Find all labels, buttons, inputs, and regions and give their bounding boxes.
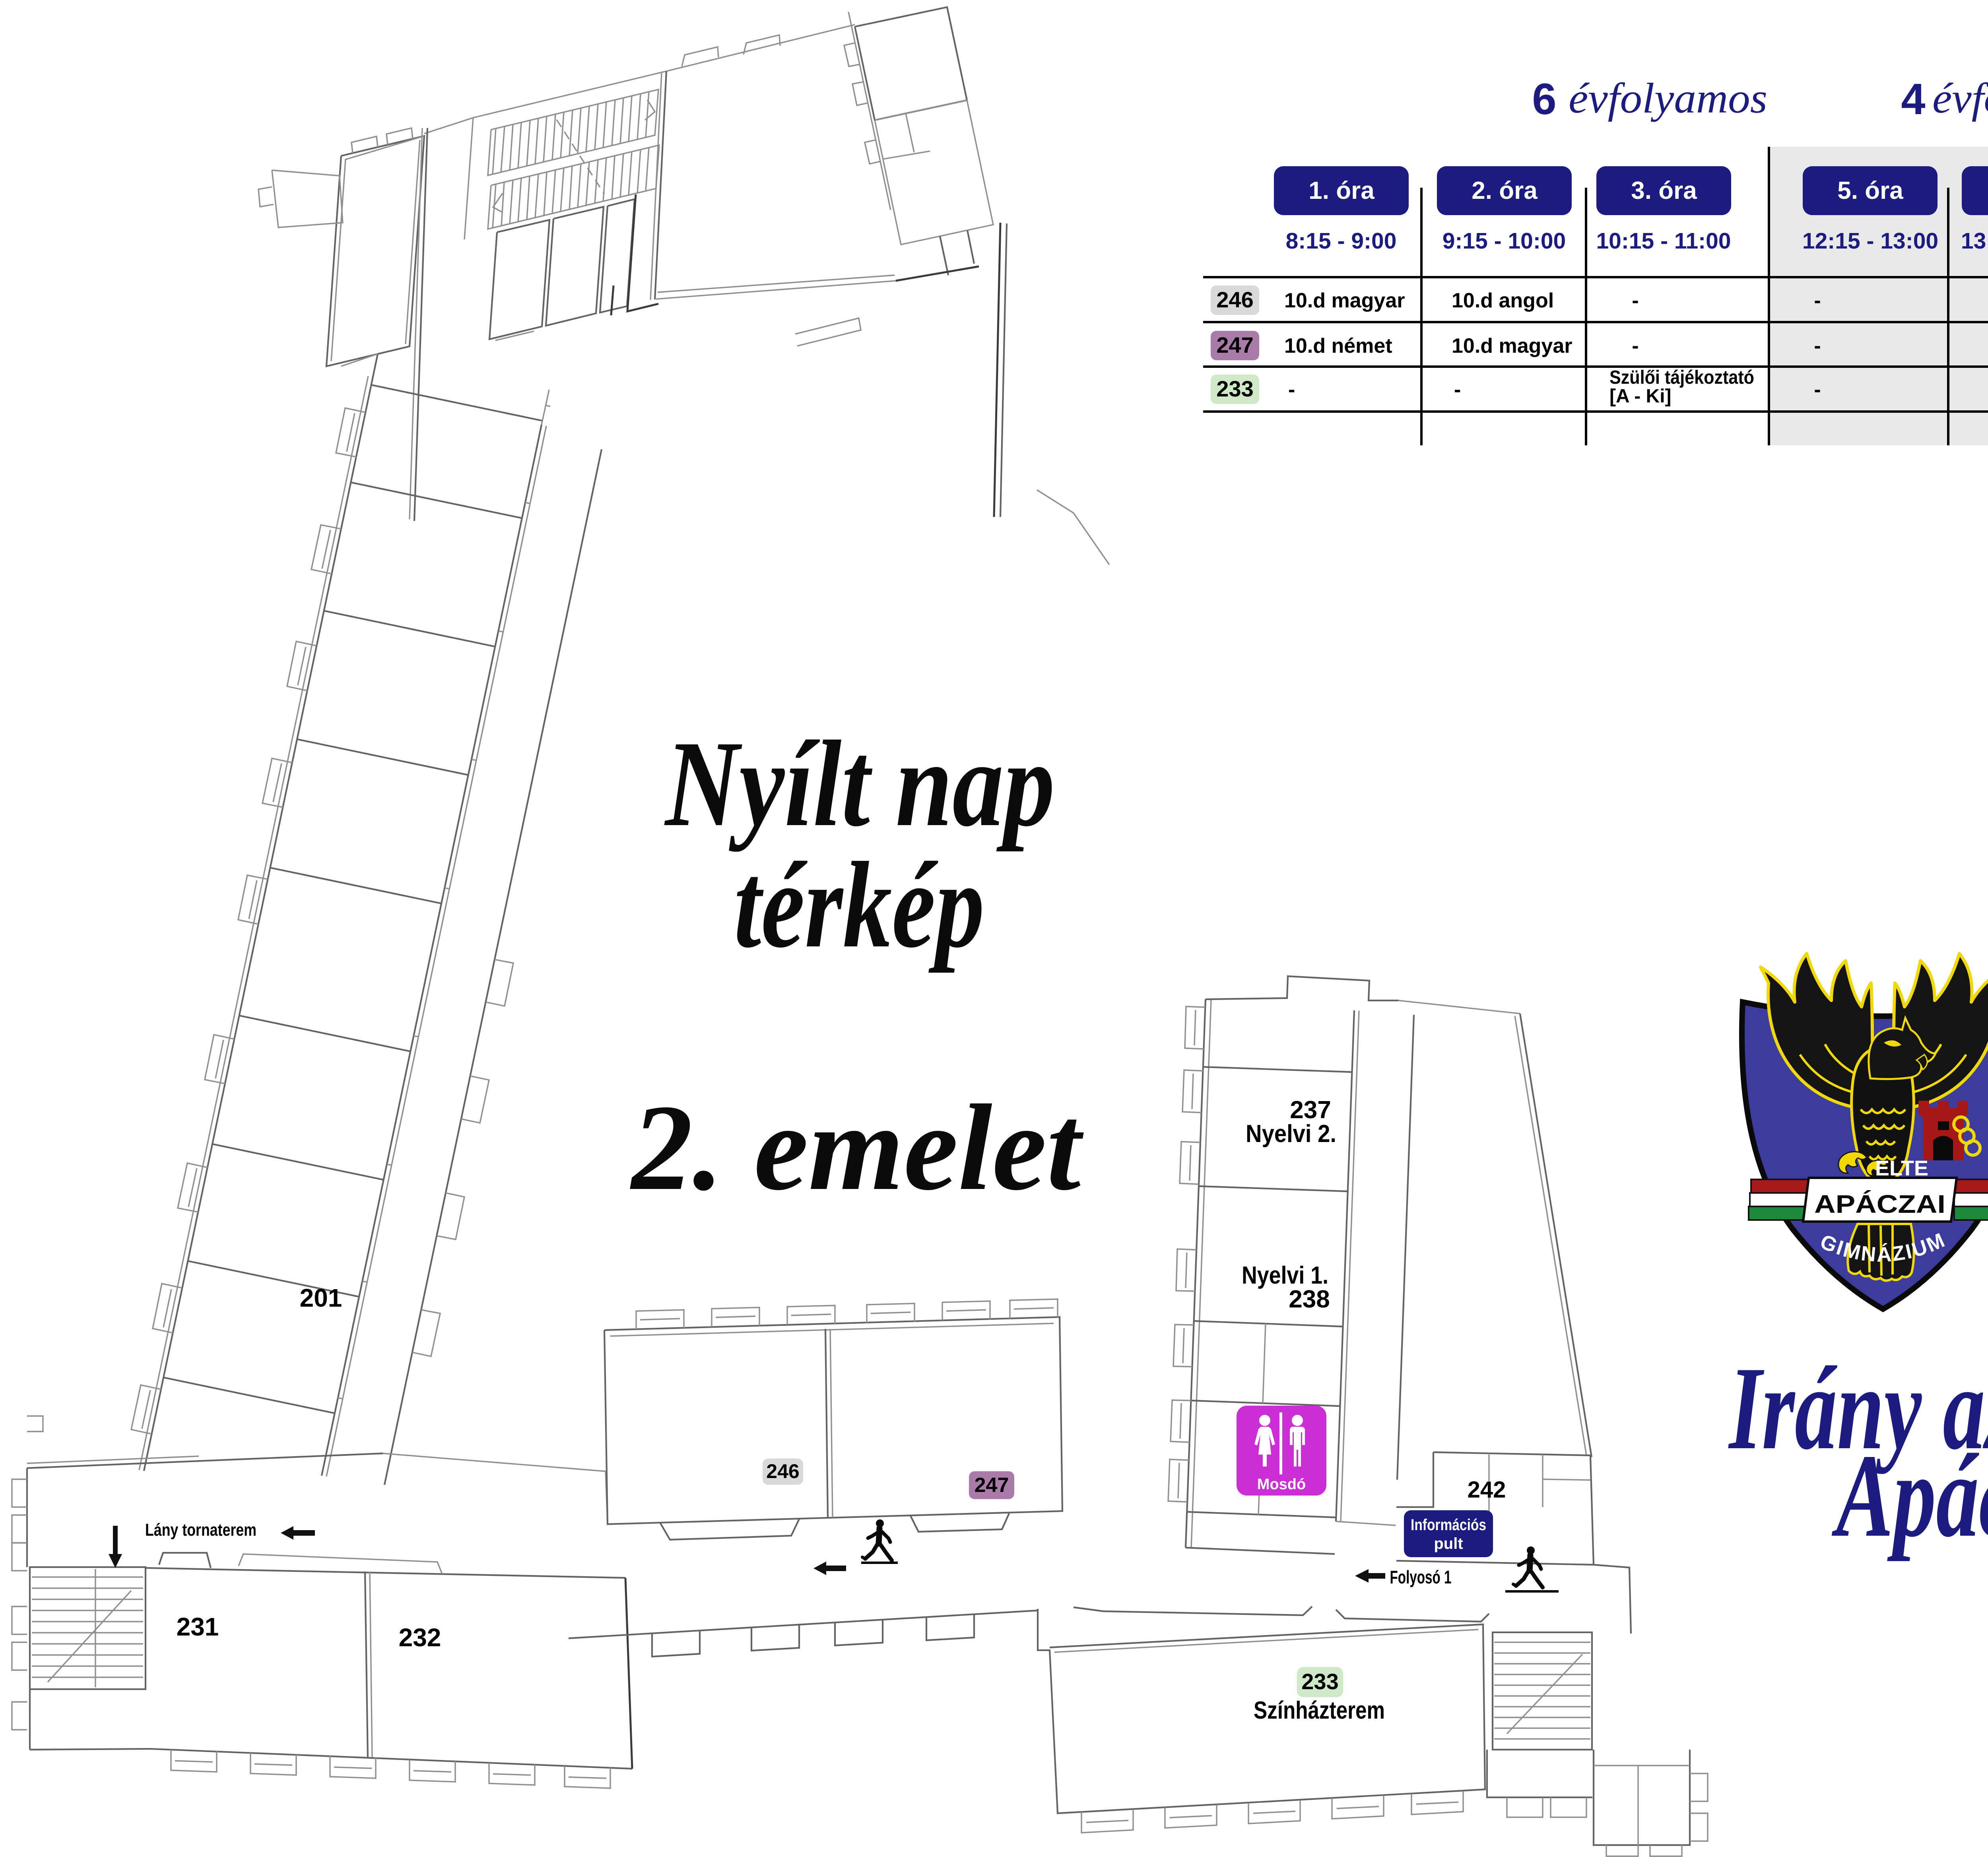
svg-text:-: -	[1632, 289, 1639, 312]
svg-text:pult: pult	[1434, 1535, 1463, 1552]
svg-text:Nyelvi 1.: Nyelvi 1.	[1242, 1262, 1328, 1289]
svg-text:6: 6	[1532, 75, 1556, 124]
svg-text:térkép: térkép	[734, 837, 984, 973]
svg-text:évfolyamos: évfolyamos	[1569, 75, 1767, 122]
svg-text:2. emelet: 2. emelet	[629, 1080, 1085, 1216]
svg-text:246: 246	[1216, 287, 1253, 312]
svg-text:Lány tornaterem: Lány tornaterem	[145, 1520, 256, 1540]
svg-text:247: 247	[975, 1474, 1009, 1497]
svg-text:4: 4	[1901, 75, 1925, 124]
svg-text:2. óra: 2. óra	[1472, 177, 1538, 204]
svg-text:APÁCZAI: APÁCZAI	[1814, 1190, 1945, 1218]
svg-text:Információs: Információs	[1411, 1516, 1486, 1534]
svg-text:10:15 - 11:00: 10:15 - 11:00	[1596, 228, 1731, 254]
svg-text:238: 238	[1289, 1286, 1330, 1313]
svg-text:-: -	[1632, 334, 1639, 357]
svg-text:Mosdó: Mosdó	[1257, 1476, 1306, 1493]
svg-text:ELTE: ELTE	[1875, 1156, 1928, 1180]
svg-text:-: -	[1288, 378, 1295, 401]
svg-text:5. óra: 5. óra	[1837, 177, 1903, 204]
svg-text:-: -	[1814, 289, 1821, 312]
svg-text:-: -	[1814, 378, 1821, 401]
svg-text:évfolyamos: évfolyamos	[1932, 75, 1988, 122]
svg-text:201: 201	[300, 1284, 342, 1312]
svg-text:[A - Ki]: [A - Ki]	[1609, 386, 1672, 407]
svg-text:233: 233	[1301, 1669, 1338, 1694]
svg-text:Folyosó 1: Folyosó 1	[1390, 1567, 1452, 1587]
svg-text:-: -	[1814, 334, 1821, 357]
svg-text:10.d magyar: 10.d magyar	[1284, 289, 1405, 312]
svg-text:9:15 - 10:00: 9:15 - 10:00	[1442, 228, 1566, 254]
svg-text:246: 246	[766, 1460, 799, 1482]
svg-text:8:15 - 9:00: 8:15 - 9:00	[1286, 228, 1397, 254]
svg-text:232: 232	[399, 1623, 441, 1652]
svg-text:10.d német: 10.d német	[1284, 334, 1392, 357]
svg-text:Nyelvi 2.: Nyelvi 2.	[1246, 1120, 1336, 1148]
svg-text:242: 242	[1468, 1477, 1506, 1503]
svg-text:12:15 - 13:00: 12:15 - 13:00	[1802, 228, 1938, 254]
svg-text:237: 237	[1290, 1096, 1331, 1124]
svg-text:3. óra: 3. óra	[1631, 177, 1697, 204]
svg-text:10.d magyar: 10.d magyar	[1452, 334, 1573, 357]
svg-text:Színházterem: Színházterem	[1254, 1697, 1385, 1724]
svg-text:233: 233	[1216, 376, 1253, 401]
svg-text:247: 247	[1216, 332, 1253, 357]
svg-text:Nyílt nap: Nyílt nap	[664, 716, 1055, 852]
svg-text:Szülői tájékoztató: Szülői tájékoztató	[1609, 367, 1754, 388]
svg-text:231: 231	[177, 1612, 219, 1641]
svg-text:10.d angol: 10.d angol	[1452, 289, 1554, 312]
svg-text:1. óra: 1. óra	[1309, 177, 1375, 204]
svg-text:-: -	[1454, 378, 1461, 401]
svg-text:Apáczai!: Apáczai!	[1831, 1430, 1988, 1562]
svg-text:13:15 - 14:00: 13:15 - 14:00	[1961, 228, 1988, 254]
